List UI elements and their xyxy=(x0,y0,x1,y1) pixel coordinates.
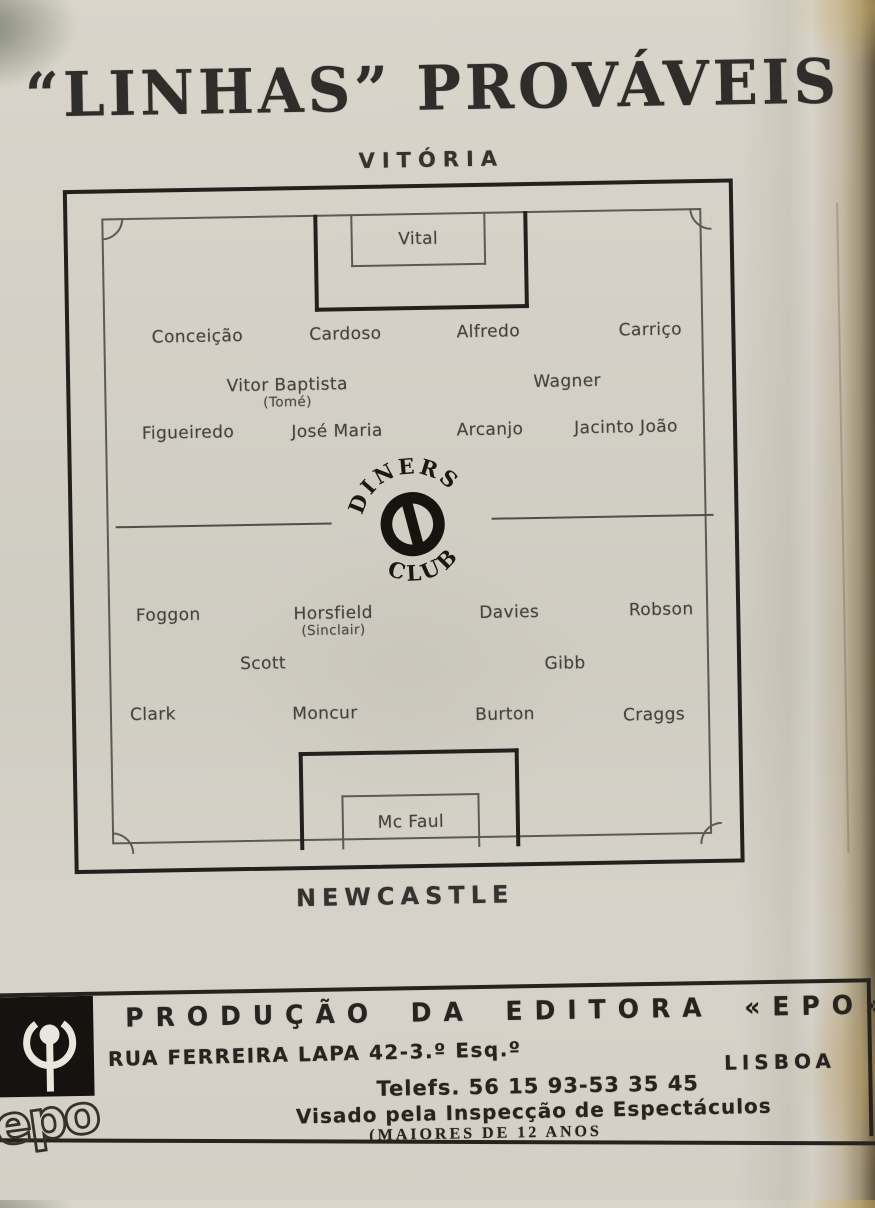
player-home-forward: Jacinto João xyxy=(574,416,678,438)
player-home-halfback: Vitor Baptista xyxy=(226,374,348,396)
pitch-diagram: Vital Conceição Cardoso Alfredo Carriço … xyxy=(63,178,745,874)
player-home-defender: Carriço xyxy=(619,319,683,340)
player-away-forward: Horsfield xyxy=(293,603,373,624)
diners-club-logo: DINERS CLUB xyxy=(343,453,481,595)
away-goalkeeper-box: Mc Faul xyxy=(341,793,480,849)
epo-publisher-logo: epo xyxy=(0,996,104,1154)
home-team-label: VITÓRIA xyxy=(96,142,766,178)
player-home-forward: José Maria xyxy=(291,421,383,443)
page-title: “LINHAS” PROVÁVEIS xyxy=(0,44,871,131)
player-away-defender: Burton xyxy=(475,704,535,725)
player-home-forward: Arcanjo xyxy=(457,419,524,440)
player-home-goalkeeper: Vital xyxy=(398,228,438,249)
player-home-defender: Cardoso xyxy=(309,324,382,345)
ad-city-label: LISBOA xyxy=(724,1049,836,1075)
player-away-halfback: Gibb xyxy=(544,653,585,674)
epo-logo-stem xyxy=(46,1034,54,1091)
player-away-forward: Davies xyxy=(479,602,539,623)
player-away-goalkeeper: Mc Faul xyxy=(378,812,445,833)
player-home-halfback-alternate: (Tomé) xyxy=(263,394,312,411)
player-away-forward: Robson xyxy=(629,599,694,620)
page-fold-line xyxy=(836,203,849,853)
home-goalkeeper-box: Vital xyxy=(350,212,486,267)
scanned-page: “LINHAS” PROVÁVEIS VITÓRIA Vital Conceiç… xyxy=(0,0,875,1207)
player-home-defender: Conceição xyxy=(152,326,244,348)
away-team-label: NEWCASTLE xyxy=(70,876,740,916)
player-home-defender: Alfredo xyxy=(456,321,520,342)
player-away-halfback: Scott xyxy=(240,653,286,674)
player-away-defender: Moncur xyxy=(292,703,358,724)
epo-logo-wordmark: epo xyxy=(0,1081,103,1153)
player-home-halfback: Wagner xyxy=(533,371,601,392)
player-away-forward-alternate: (Sinclair) xyxy=(301,622,365,639)
player-away-defender: Craggs xyxy=(623,704,685,725)
player-home-forward: Figueiredo xyxy=(142,422,235,444)
player-away-forward: Foggon xyxy=(136,605,201,626)
player-away-defender: Clark xyxy=(130,704,176,725)
